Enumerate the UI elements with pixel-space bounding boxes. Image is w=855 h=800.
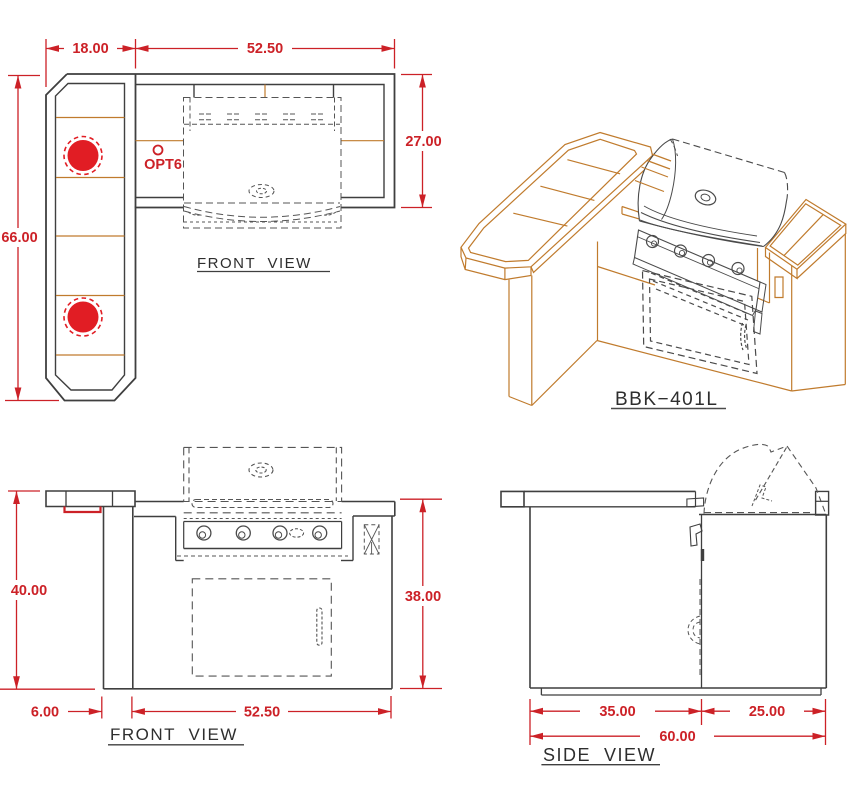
svg-text:52.50: 52.50 (244, 705, 280, 721)
svg-text:FRONT VIEW: FRONT VIEW (110, 725, 238, 744)
svg-text:FRONT VIEW: FRONT VIEW (197, 255, 312, 272)
svg-text:OPT6: OPT6 (144, 157, 182, 173)
svg-text:27.00: 27.00 (405, 134, 441, 150)
svg-text:52.50: 52.50 (247, 41, 283, 57)
svg-text:35.00: 35.00 (599, 704, 635, 720)
svg-text:BBK−401L: BBK−401L (615, 389, 718, 410)
svg-text:38.00: 38.00 (405, 589, 441, 605)
svg-text:SIDE VIEW: SIDE VIEW (543, 745, 656, 765)
svg-text:25.00: 25.00 (749, 704, 785, 720)
svg-text:60.00: 60.00 (659, 729, 695, 745)
svg-text:18.00: 18.00 (72, 41, 108, 57)
svg-text:66.00: 66.00 (1, 230, 37, 246)
svg-text:40.00: 40.00 (11, 583, 47, 599)
svg-text:6.00: 6.00 (31, 705, 59, 721)
